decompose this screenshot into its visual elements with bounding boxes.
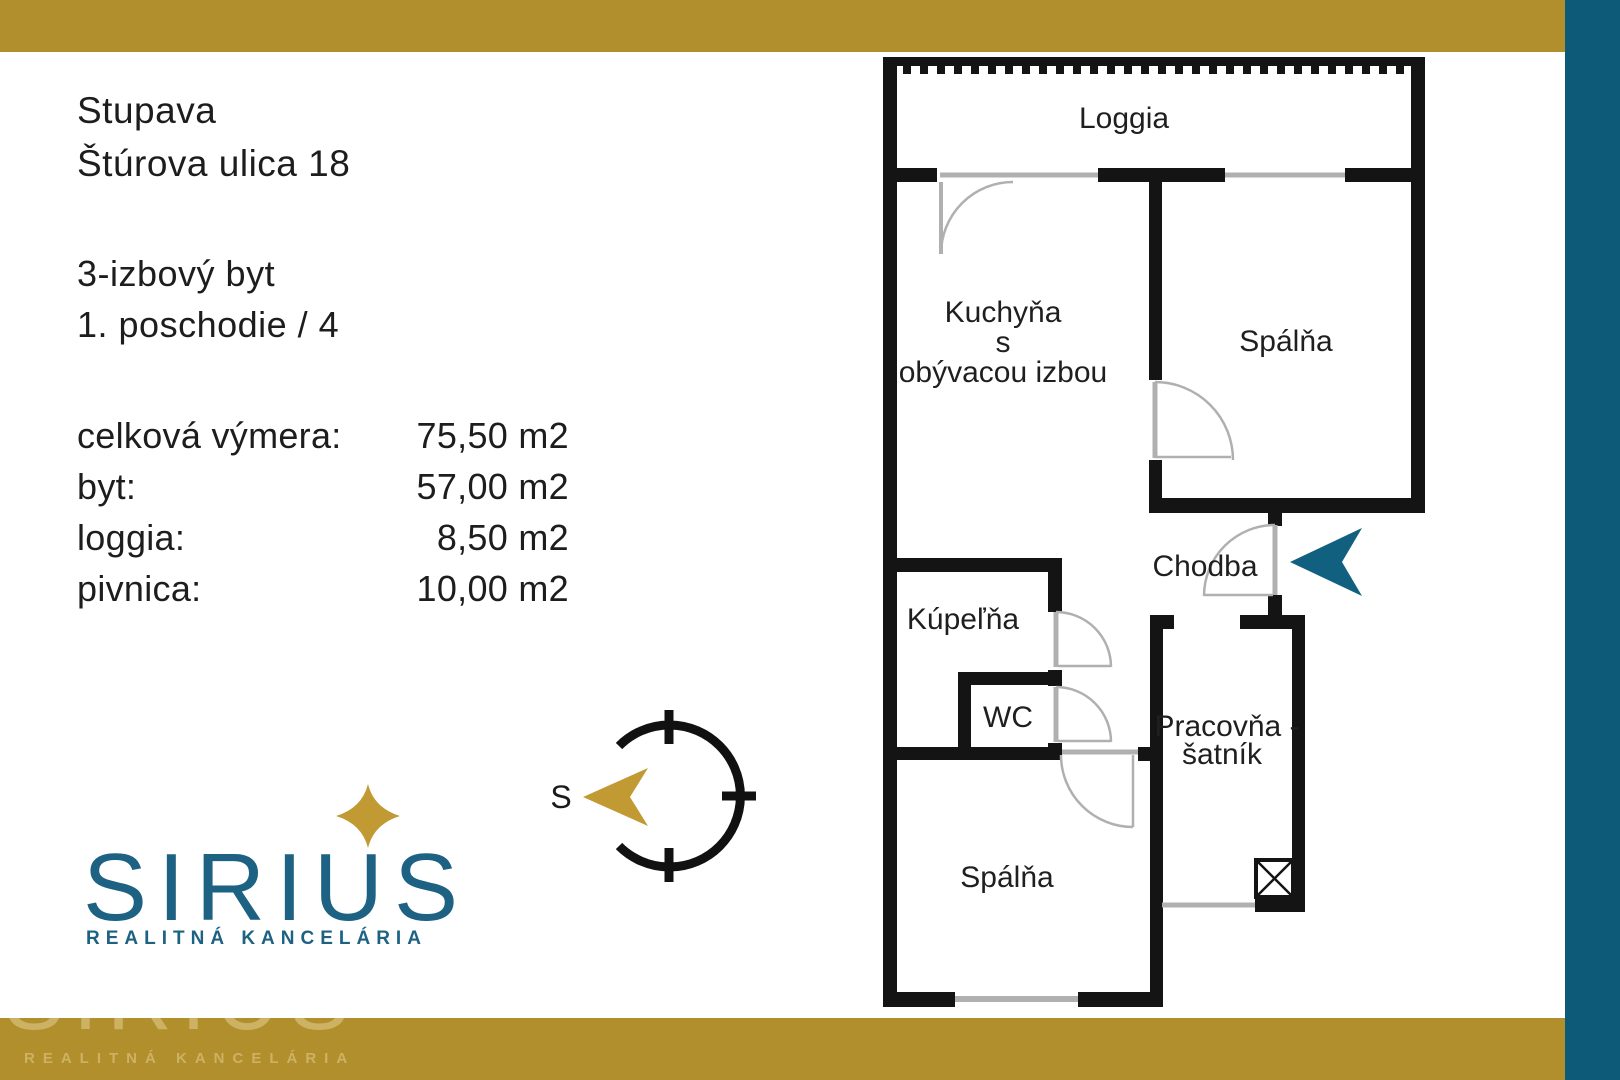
compass: S bbox=[550, 710, 756, 882]
room-label-kitchen-line3: obývacou izbou bbox=[899, 356, 1107, 389]
room-label-kitchen-line1: Kuchyňa bbox=[945, 296, 1062, 329]
room-label-bedroom-bottom: Spálňa bbox=[960, 861, 1054, 894]
room-label-bathroom: Kúpeľňa bbox=[907, 603, 1019, 636]
floor-plan: Loggia Kuchyňa s obývacou izbou Spálňa C… bbox=[0, 0, 1620, 1080]
room-label-loggia: Loggia bbox=[1079, 102, 1169, 135]
room-label-study-line2: šatník bbox=[1182, 738, 1263, 771]
shaft-icon bbox=[1256, 860, 1293, 897]
room-label-hallway: Chodba bbox=[1152, 550, 1257, 583]
entrance-arrow-icon bbox=[1290, 528, 1362, 596]
compass-arrow-icon bbox=[583, 768, 648, 826]
compass-south-label: S bbox=[550, 779, 571, 815]
room-label-bedroom-top: Spálňa bbox=[1239, 325, 1333, 358]
room-label-kitchen-line2: s bbox=[996, 326, 1011, 359]
flyer-page: { "colors": { "gold": "#B28F2D", "teal_b… bbox=[0, 0, 1620, 1080]
room-label-wc: WC bbox=[983, 701, 1033, 734]
